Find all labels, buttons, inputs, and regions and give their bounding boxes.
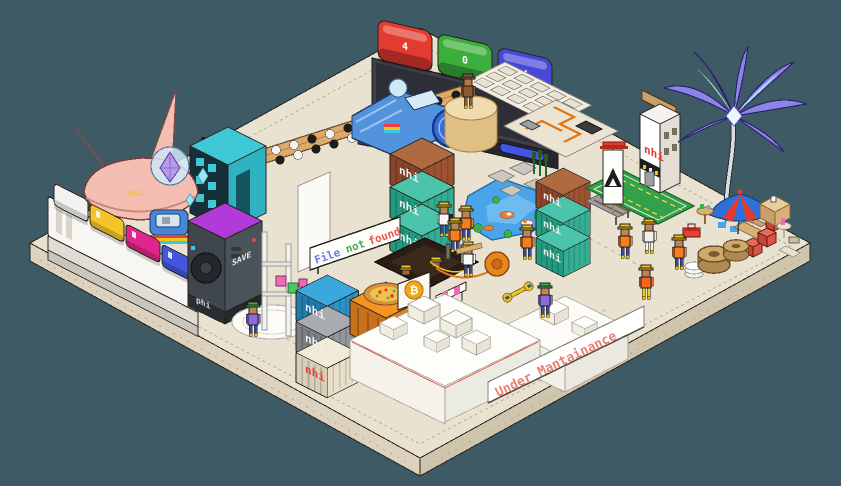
key-glyph: 0 bbox=[462, 55, 468, 67]
container-stack-b: nhi nhi nhi bbox=[296, 275, 358, 398]
tower-door[interactable] bbox=[645, 172, 654, 186]
key-glyph: 4 bbox=[402, 41, 408, 53]
edge-latch bbox=[789, 237, 799, 243]
orange-spool bbox=[485, 252, 509, 276]
machine-dome bbox=[389, 79, 407, 97]
cattails bbox=[532, 150, 548, 178]
jackhammer bbox=[446, 244, 450, 259]
worker-in-hole bbox=[400, 265, 412, 275]
ship-phi-label: phi bbox=[128, 188, 145, 199]
pilot-cat bbox=[162, 217, 170, 224]
container-stack-c: nhi nhi nhi bbox=[536, 168, 590, 277]
bitcoin-symbol: ₿ bbox=[410, 284, 419, 297]
pixel-art-scene: L3Π4 4 0 4 bbox=[0, 0, 841, 486]
cable-spool bbox=[724, 240, 749, 261]
